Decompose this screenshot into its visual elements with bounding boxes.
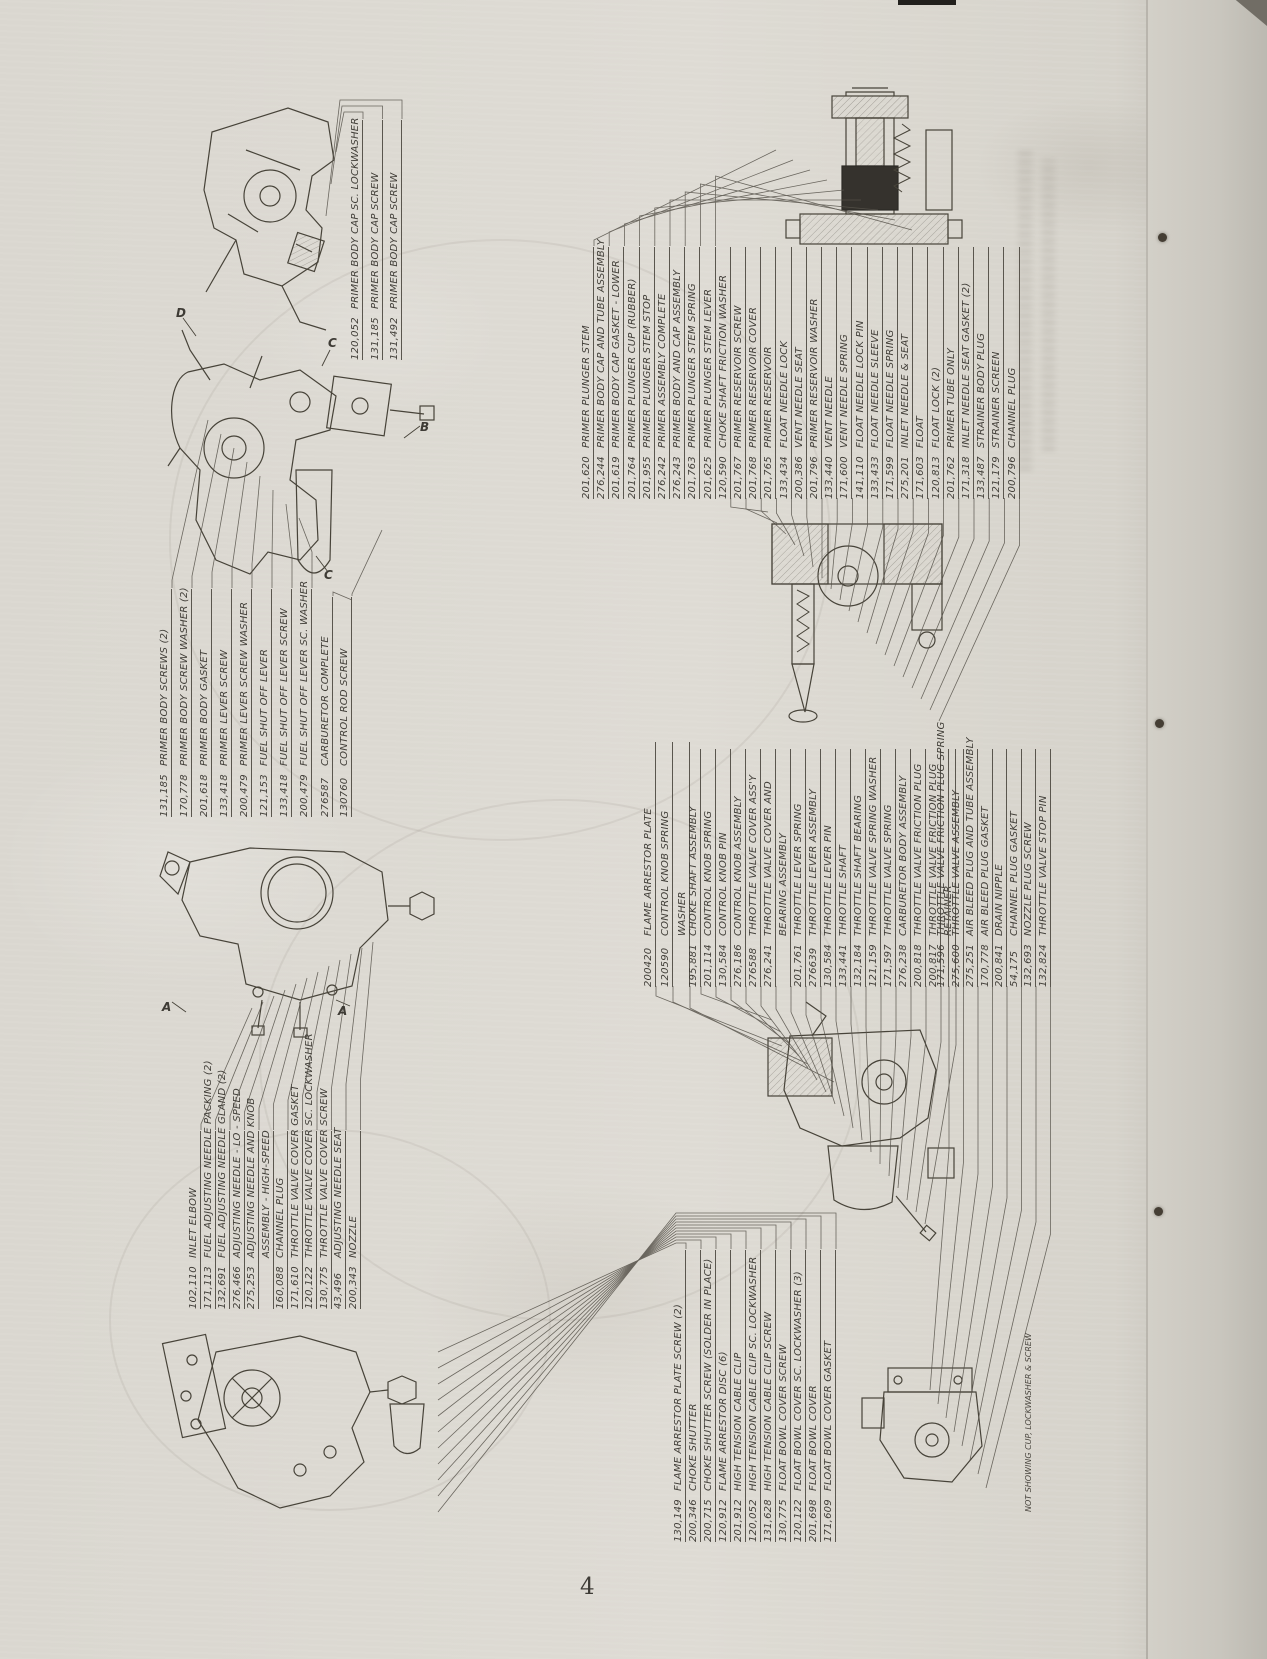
- part-name: FUEL ADJUSTING NEEDLE GLAND (2): [217, 1069, 228, 1258]
- part-label: 275,201INLET NEEDLE & SEAT: [899, 247, 913, 499]
- part-name: PRIMER PLUNGER STEM: [581, 325, 592, 448]
- part-label: 200420FLAME ARRESTOR PLATE: [642, 742, 656, 987]
- part-label: 170,778AIR BLEED PLUG GASKET: [979, 749, 993, 987]
- part-name: CHOKE SHUTTER: [688, 1403, 699, 1491]
- part-label: 200,386VENT NEEDLE SEAT: [793, 247, 807, 499]
- part-number: 200,818: [912, 941, 925, 987]
- part-label: 133,433FLOAT NEEDLE SLEEVE: [869, 247, 883, 499]
- part-name: FLOAT NEEDLE LOCK PIN: [855, 320, 866, 448]
- part-label: 121,179STRAINER SCREEN: [990, 247, 1004, 499]
- part-label: 131,185PRIMER BODY SCREWS (2): [158, 589, 172, 817]
- part-number: 132,693: [1022, 941, 1035, 987]
- part-number: 201,761: [792, 941, 805, 987]
- part-name: FLOAT NEEDLE SPRING: [885, 330, 896, 448]
- part-name: PRIMER BODY GASKET: [199, 650, 210, 766]
- diagram-note: NOT SHOWING CUP, LOCKWASHER & SCREW: [1024, 1333, 1034, 1512]
- part-name: FLOAT NEEDLE LOCK: [779, 341, 790, 448]
- part-label: 130,775FLOAT BOWL COVER SCREW: [777, 1250, 791, 1542]
- part-number: 200,386: [793, 453, 806, 499]
- part-name: THROTTLE SHAFT BEARING: [853, 795, 864, 936]
- part-label: 160,088CHANNEL PLUG: [274, 1131, 288, 1309]
- part-name: FLAME ARRESTOR DISC (6): [718, 1351, 729, 1491]
- part-number: 195,881: [687, 941, 700, 987]
- part-name: CARBURETOR COMPLETE: [320, 636, 331, 766]
- part-name: CHANNEL PLUG: [275, 1178, 286, 1258]
- part-label: 130760CONTROL ROD SCREW: [338, 597, 352, 817]
- part-name: THROTTLE LEVER ASSEMBLY: [808, 789, 819, 936]
- part-name: THROTTLE VALVE COVER GASKET: [290, 1085, 301, 1258]
- leader-line: [938, 986, 964, 1404]
- part-number: 276587: [319, 771, 332, 817]
- part-name: FUEL ADJUSTING NEEDLE PACKING (2): [203, 1060, 214, 1258]
- part-number: 276,244: [595, 453, 608, 499]
- leader-line: [609, 160, 793, 246]
- part-label: 120,590CHOKE SHAFT FRICTION WASHER: [717, 247, 731, 499]
- leader-line: [212, 448, 234, 588]
- part-number: 120,052: [747, 1496, 760, 1542]
- binder-hole: [1158, 233, 1167, 242]
- part-name: VENT NEEDLE SEAT: [794, 347, 805, 448]
- diagram-reservoir-section: [772, 524, 942, 722]
- part-label: 200,818THROTTLE VALVE FRICTION PLUG: [912, 749, 926, 987]
- part-number: 131,628: [762, 1496, 775, 1542]
- part-name: FLOAT LOCK (2): [931, 367, 942, 448]
- part-name: THROTTLE VALVE COVER ASS'Y: [748, 775, 759, 936]
- leader-line: [898, 986, 911, 1188]
- part-number: 201,698: [807, 1496, 820, 1542]
- part-number: 200,715: [702, 1496, 715, 1542]
- part-label: 200,479PRIMER LEVER SCREW WASHER: [238, 589, 252, 817]
- part-label: 54,175CHANNEL PLUG GASKET: [1008, 749, 1022, 987]
- part-name: CONTROL KNOB ASSEMBLY: [733, 796, 744, 936]
- part-label: 171,318INLET NEEDLE SEAT GASKET (2): [960, 247, 974, 499]
- part-label: 130,584CONTROL KNOB PIN: [717, 749, 731, 987]
- part-number: 133,487: [975, 453, 988, 499]
- part-name: PRIMER BODY AND CAP ASSEMBLY: [672, 270, 683, 448]
- part-name: THROTTLE VALVE STOP PIN: [1038, 795, 1049, 936]
- part-number: 200420: [642, 941, 655, 987]
- part-label: 201,698FLOAT BOWL COVER: [807, 1250, 821, 1542]
- part-label: BEARING ASSEMBLY: [777, 749, 791, 987]
- part-label: 275,253ADJUSTING NEEDLE AND KNOB: [245, 1131, 259, 1309]
- part-name: THROTTLE VALVE FRICTION PLUG: [913, 764, 924, 936]
- part-label: 132,691FUEL ADJUSTING NEEDLE GLAND (2): [216, 1131, 230, 1309]
- part-name: PRIMER PLUNGER STEM STOP: [642, 295, 653, 448]
- part-name: ADJUSTING NEEDLE AND KNOB: [246, 1098, 257, 1258]
- diagram-carburetor-front-view: [160, 848, 434, 1037]
- part-name: THROTTLE VALVE ASSEMBLY: [951, 790, 962, 936]
- part-number: 120590: [659, 941, 672, 987]
- part-label: 133,434FLOAT NEEDLE LOCK: [778, 247, 792, 499]
- part-label: 201,955PRIMER PLUNGER STEM STOP: [641, 247, 655, 499]
- part-number: 201,763: [686, 453, 699, 499]
- part-name: AIR BLEED PLUG AND TUBE ASSEMBLY: [965, 737, 976, 936]
- part-name: PRIMER PLUNGER CUP (RUBBER): [627, 278, 638, 448]
- part-number: 171,599: [884, 453, 897, 499]
- leader-line: [716, 986, 781, 1032]
- part-label: 275,600THROTTLE VALVE ASSEMBLY: [950, 749, 964, 987]
- leader-line: [172, 420, 208, 588]
- diagram-float-bowl-rear: [862, 1368, 982, 1482]
- part-name: VENT NEEDLE: [824, 376, 835, 448]
- part-label: 120,052PRIMER BODY CAP SC. LOCKWASHER: [349, 120, 363, 360]
- part-number: 120,813: [930, 453, 943, 499]
- part-name: STRAINER BODY PLUG: [976, 333, 987, 448]
- part-number: 133,441: [837, 941, 850, 987]
- part-name: AIR BLEED PLUG GASKET: [980, 806, 991, 936]
- part-number: 201,762: [945, 453, 958, 499]
- part-name: CHOKE SHAFT FRICTION WASHER: [718, 275, 729, 448]
- leader-line: [946, 986, 978, 1418]
- part-number: 121,159: [867, 941, 880, 987]
- part-label: 200,841DRAIN NIPPLE: [993, 749, 1007, 987]
- part-name: STRAINER SCREEN: [991, 351, 1002, 448]
- part-name: PRIMER BODY CAP AND TUBE ASSEMBLY: [596, 239, 607, 448]
- part-label: 171,599FLOAT NEEDLE SPRING: [884, 247, 898, 499]
- part-label: 201,619PRIMER BODY CAP GASKET - LOWER: [610, 247, 624, 499]
- leader-line: [731, 498, 768, 512]
- leader-line: [731, 986, 790, 1044]
- part-label: 131,185PRIMER BODY CAP SCREW: [369, 120, 383, 360]
- part-name: THROTTLE SHAFT: [838, 845, 849, 936]
- part-number: 121,153: [258, 771, 271, 817]
- part-number: 131,492: [388, 314, 401, 360]
- part-number: 120,052: [349, 314, 362, 360]
- part-label: 130,149FLAME ARRESTOR PLATE SCREW (2): [672, 1250, 686, 1542]
- part-number: 171,596: [935, 941, 948, 987]
- ref-letter-b: B: [420, 420, 429, 434]
- part-label: 133,440VENT NEEDLE: [823, 247, 837, 499]
- part-label: 276,186CONTROL KNOB ASSEMBLY: [732, 749, 746, 987]
- part-number: 130,775: [318, 1263, 331, 1309]
- part-label: 133,418PRIMER LEVER SCREW: [218, 589, 232, 817]
- part-label: 276,242PRIMER ASSEMBLY COMPLETE: [656, 247, 670, 499]
- leader-line: [939, 498, 1020, 721]
- part-number: 170,778: [979, 941, 992, 987]
- part-name: CONTROL KNOB PIN: [718, 832, 729, 936]
- part-label: 171,113FUEL ADJUSTING NEEDLE PACKING (2): [202, 1131, 216, 1309]
- part-name: PRIMER RESERVOIR WASHER: [809, 298, 820, 448]
- part-label: 43,496ADJUSTING NEEDLE SEAT: [332, 1131, 346, 1309]
- part-number: 132,691: [216, 1263, 229, 1309]
- part-name: FLAME ARRESTOR PLATE SCREW (2): [673, 1304, 684, 1491]
- part-name: PRIMER PLUNGER STEM SPRING: [687, 283, 698, 448]
- part-label: 133,418FUEL SHUT OFF LEVER SCREW: [278, 589, 292, 817]
- part-number: 121,179: [990, 453, 1003, 499]
- part-label: 200,346CHOKE SHUTTER: [687, 1250, 701, 1542]
- part-number: 276,241: [762, 941, 775, 987]
- part-number: 171,318: [960, 453, 973, 499]
- part-number: 120,122: [792, 1496, 805, 1542]
- part-number: 132,824: [1037, 941, 1050, 987]
- leader-line: [858, 498, 883, 622]
- part-label: 102,110INLET ELBOW: [187, 1131, 201, 1309]
- part-name: HIGH TENSION CABLE CLIP SCREW: [763, 1312, 774, 1491]
- part-number: 43,496: [332, 1263, 345, 1309]
- part-name: ASSEMBLY - HIGH-SPEED: [261, 1130, 272, 1258]
- part-name: FLOAT BOWL COVER: [808, 1385, 819, 1491]
- part-number: 200,346: [687, 1496, 700, 1542]
- part-name: INLET ELBOW: [188, 1188, 199, 1258]
- part-name: DRAIN NIPPLE: [994, 864, 1005, 936]
- part-number: 133,418: [218, 771, 231, 817]
- part-label: 133,487STRAINER BODY PLUG: [975, 247, 989, 499]
- part-label: 171,603FLOAT: [914, 247, 928, 499]
- part-name: HIGH TENSION CABLE CLIP SC. LOCKWASHER: [748, 1257, 759, 1491]
- part-label: 201,625PRIMER PLUNGER STEM LEVER: [702, 247, 716, 499]
- part-label: 276639THROTTLE LEVER ASSEMBLY: [807, 749, 821, 987]
- part-name: CHANNEL PLUG: [1007, 368, 1018, 448]
- part-number: 201,619: [610, 453, 623, 499]
- part-label: 276,241THROTTLE VALVE COVER AND: [762, 749, 776, 987]
- scan-artifact-bar: [898, 0, 956, 5]
- part-name: THROTTLE VALVE SPRING WASHER: [868, 756, 879, 936]
- page-number: 4: [580, 1574, 595, 1600]
- part-label: 275,251AIR BLEED PLUG AND TUBE ASSEMBLY: [964, 749, 978, 987]
- part-number: 201,620: [580, 453, 593, 499]
- part-name: VENT NEEDLE SPRING: [839, 334, 850, 448]
- part-number: 275,201: [899, 453, 912, 499]
- part-number: 201,912: [732, 1496, 745, 1542]
- part-name: INLET NEEDLE & SEAT: [900, 334, 911, 448]
- part-number: 170,778: [178, 771, 191, 817]
- part-name: CONTROL KNOB SPRING: [660, 811, 671, 936]
- part-number: 276,242: [656, 453, 669, 499]
- part-number: 275,600: [950, 941, 963, 987]
- part-label: 276,243PRIMER BODY AND CAP ASSEMBLY: [671, 247, 685, 499]
- part-label: 195,881CHOKE SHAFT ASSEMBLY: [687, 749, 701, 987]
- part-name: FLOAT BOWL COVER SCREW: [778, 1344, 789, 1491]
- part-number: 200,841: [993, 941, 1006, 987]
- ref-letter-c-upper: C: [328, 336, 337, 350]
- part-number: 120,590: [717, 453, 730, 499]
- part-number: 276588: [747, 941, 760, 987]
- part-label: 120,122THROTTLE VALVE COVER SC. LOCKWASH…: [303, 1131, 317, 1309]
- part-label: ASSEMBLY - HIGH-SPEED: [260, 1131, 274, 1309]
- part-name: FLOAT BOWL COVER SC. LOCKWASHER (3): [793, 1271, 804, 1491]
- part-name: PRIMER BODY CAP GASKET - LOWER: [611, 260, 622, 448]
- part-number: 130760: [338, 771, 351, 817]
- part-name: PRIMER RESERVOIR: [763, 346, 774, 448]
- part-name: FLOAT: [915, 416, 926, 448]
- part-number: 120,912: [717, 1496, 730, 1542]
- part-name: CONTROL ROD SCREW: [339, 648, 350, 766]
- part-number: 133,440: [823, 453, 836, 499]
- part-name: BEARING ASSEMBLY: [778, 833, 789, 936]
- binder-hole: [1155, 719, 1164, 728]
- bleed-smudge: [1018, 150, 1032, 470]
- part-number: 130,584: [822, 941, 835, 987]
- part-number: 276,186: [732, 941, 745, 987]
- leader-line: [831, 498, 837, 589]
- part-label: 201,618PRIMER BODY GASKET: [198, 589, 212, 817]
- part-label: 201,796PRIMER RESERVOIR WASHER: [808, 247, 822, 499]
- part-name: CHOKE SHAFT ASSEMBLY: [688, 806, 699, 936]
- part-name: PRIMER BODY CAP SCREW: [370, 173, 381, 309]
- part-number: 275,253: [245, 1263, 258, 1309]
- part-label: 120,813FLOAT LOCK (2): [930, 247, 944, 499]
- leader-line: [332, 954, 352, 1130]
- part-number: 141,110: [854, 453, 867, 499]
- part-name: CHANNEL PLUG GASKET: [1009, 811, 1020, 936]
- part-name: ADJUSTING NEEDLE SEAT: [333, 1127, 344, 1258]
- part-number: 130,584: [717, 941, 730, 987]
- part-number: 201,768: [747, 453, 760, 499]
- part-label: 130,584THROTTLE LEVER PIN: [822, 749, 836, 987]
- part-label: 276588THROTTLE VALVE COVER ASS'Y: [747, 749, 761, 987]
- part-name: ADJUSTING NEEDLE - LO - SPEED: [232, 1088, 243, 1258]
- leader-line: [286, 504, 292, 588]
- part-number: 171,600: [838, 453, 851, 499]
- part-label: 171,600VENT NEEDLE SPRING: [838, 247, 852, 499]
- part-name: FUEL SHUT OFF LEVER: [259, 649, 270, 766]
- part-label: 201,912HIGH TENSION CABLE CLIP: [732, 1250, 746, 1542]
- part-label: 200,343NOZZLE: [347, 1131, 361, 1309]
- part-label: 171,596THROTTLE VALVE FRICTION PLUG SPRI…: [935, 749, 949, 987]
- part-number: 201,767: [732, 453, 745, 499]
- part-name: PRIMER BODY CAP SCREW: [389, 173, 400, 309]
- part-label: 120590CONTROL KNOB SPRING: [659, 742, 673, 987]
- part-label: 133,441THROTTLE SHAFT: [837, 749, 851, 987]
- part-number: 201,114: [702, 941, 715, 987]
- part-name: PRIMER RESERVOIR COVER: [748, 307, 759, 448]
- part-label: 132,824THROTTLE VALVE STOP PIN: [1037, 749, 1051, 987]
- part-name: THROTTLE VALVE FRICTION PLUG SPRING: [936, 722, 947, 937]
- part-name: FUEL SHUT OFF LEVER SC. WASHER: [299, 581, 310, 766]
- part-name: THROTTLE VALVE COVER SCREW: [319, 1088, 330, 1258]
- ref-letter-d: D: [176, 306, 186, 320]
- part-number: 171,610: [289, 1263, 302, 1309]
- part-label: 121,159THROTTLE VALVE SPRING WASHER: [867, 749, 881, 987]
- part-number: 171,609: [822, 1496, 835, 1542]
- binder-hole: [1154, 1207, 1163, 1216]
- part-label: 276,466ADJUSTING NEEDLE - LO - SPEED: [231, 1131, 245, 1309]
- leader-line: [656, 986, 782, 1046]
- part-name: THROTTLE LEVER SPRING: [793, 803, 804, 936]
- part-name: HIGH TENSION CABLE CLIP: [733, 1352, 744, 1491]
- part-label: 131,492PRIMER BODY CAP SCREW: [388, 120, 402, 360]
- ref-letter-a-right: A: [338, 1004, 347, 1018]
- part-label: 201,764PRIMER PLUNGER CUP (RUBBER): [626, 247, 640, 499]
- part-name: PRIMER LEVER SCREW: [219, 650, 230, 766]
- part-label: 201,620PRIMER PLUNGER STEM: [580, 247, 594, 499]
- part-name: FUEL SHUT OFF LEVER SCREW: [279, 608, 290, 766]
- part-label: 171,597THROTTLE VALVE SPRING: [882, 749, 896, 987]
- part-name: PRIMER BODY SCREWS (2): [159, 629, 170, 766]
- leader-line: [849, 498, 868, 611]
- part-label: 171,610THROTTLE VALVE COVER GASKET: [289, 1131, 303, 1309]
- part-name: THROTTLE LEVER PIN: [823, 825, 834, 936]
- part-label: 141,110FLOAT NEEDLE LOCK PIN: [854, 247, 868, 499]
- part-label: 200,715CHOKE SHUTTER SCREW (SOLDER IN PL…: [702, 1250, 716, 1542]
- part-label: 200,479FUEL SHUT OFF LEVER SC. WASHER: [298, 589, 312, 817]
- leader-line: [907, 986, 926, 1200]
- part-name: PRIMER RESERVOIR SCREW: [733, 305, 744, 448]
- diagram-primer-section: [786, 88, 962, 244]
- part-label: 171,609FLOAT BOWL COVER GASKET: [822, 1250, 836, 1542]
- part-number: 276639: [807, 941, 820, 987]
- leader-line: [986, 986, 1051, 1488]
- page-edge: [1148, 0, 1267, 1659]
- part-name: NOZZLE PLUG SCREW: [1023, 822, 1034, 936]
- part-number: 130,149: [672, 1496, 685, 1542]
- leader-line: [624, 170, 810, 246]
- part-label: 201,761THROTTLE LEVER SPRING: [792, 749, 806, 987]
- part-number: 130,775: [777, 1496, 790, 1542]
- part-number: 133,434: [778, 453, 791, 499]
- part-label: 170,778PRIMER BODY SCREW WASHER (2): [178, 589, 192, 817]
- part-number: 120,122: [303, 1263, 316, 1309]
- part-label: 131,628HIGH TENSION CABLE CLIP SCREW: [762, 1250, 776, 1542]
- part-number: 54,175: [1008, 941, 1021, 987]
- leader-line: [840, 498, 852, 600]
- part-number: 200,479: [298, 771, 311, 817]
- part-label: 276,244PRIMER BODY CAP AND TUBE ASSEMBLY: [595, 247, 609, 499]
- part-name: FLOAT NEEDLE SLEEVE: [870, 329, 881, 448]
- part-number: 171,603: [914, 453, 927, 499]
- part-name: PRIMER PLUNGER STEM LEVER: [703, 289, 714, 448]
- part-label: 201,767PRIMER RESERVOIR SCREW: [732, 247, 746, 499]
- part-number: 171,113: [202, 1263, 215, 1309]
- part-name: NOZZLE: [348, 1216, 359, 1258]
- part-label: 201,762PRIMER TUBE ONLY: [945, 247, 959, 499]
- part-label: 201,768PRIMER RESERVOIR COVER: [747, 247, 761, 499]
- part-number: 201,618: [198, 771, 211, 817]
- bleed-smudge: [1042, 160, 1055, 450]
- part-number: 160,088: [274, 1263, 287, 1309]
- part-name: FLAME ARRESTOR PLATE: [643, 808, 654, 936]
- part-name: THROTTLE VALVE SPRING: [883, 804, 894, 936]
- part-number: 275,251: [964, 941, 977, 987]
- part-number: 201,765: [762, 453, 775, 499]
- part-number: 276,238: [897, 941, 910, 987]
- part-number: 201,764: [626, 453, 639, 499]
- part-label: 201,765PRIMER RESERVOIR: [762, 247, 776, 499]
- part-number: 276,243: [671, 453, 684, 499]
- part-number: 102,110: [187, 1263, 200, 1309]
- diagram-primer-pump-side: [204, 108, 334, 330]
- part-name: PRIMER TUBE ONLY: [946, 348, 957, 448]
- part-label: 201,763PRIMER PLUNGER STEM SPRING: [686, 247, 700, 499]
- part-number: 132,184: [852, 941, 865, 987]
- part-label: 276,238CARBURETOR BODY ASSEMBLY: [897, 749, 911, 987]
- part-number: 276,466: [231, 1263, 244, 1309]
- part-name: PRIMER LEVER SCREW WASHER: [239, 602, 250, 766]
- part-name: THROTTLE VALVE COVER SC. LOCKWASHER: [304, 1033, 315, 1258]
- leader-line: [361, 942, 374, 1130]
- part-label: 120,122FLOAT BOWL COVER SC. LOCKWASHER (…: [792, 1250, 806, 1542]
- part-number: 201,625: [702, 453, 715, 499]
- part-label: 201,114CONTROL KNOB SPRING: [702, 749, 716, 987]
- part-name: CONTROL KNOB SPRING: [703, 811, 714, 936]
- part-number: 200,479: [238, 771, 251, 817]
- part-number: 131,185: [369, 314, 382, 360]
- diagram-carburetor-bottom-view: [163, 1334, 424, 1508]
- part-name: PRIMER BODY CAP SC. LOCKWASHER: [350, 118, 361, 309]
- part-number: 201,955: [641, 453, 654, 499]
- part-name: INLET NEEDLE SEAT GASKET (2): [961, 283, 972, 448]
- leader-line: [272, 490, 273, 588]
- scanned-page: 120,052PRIMER BODY CAP SC. LOCKWASHER131…: [0, 0, 1267, 1659]
- leader-line: [836, 986, 853, 1128]
- leader-line: [438, 1243, 686, 1352]
- part-number: 171,597: [882, 941, 895, 987]
- part-number: 133,433: [869, 453, 882, 499]
- part-number: 200,796: [1006, 453, 1019, 499]
- ref-letter-c-lower: C: [324, 568, 333, 582]
- part-name: FLOAT BOWL COVER GASKET: [823, 1341, 834, 1491]
- part-label: 120,912FLAME ARRESTOR DISC (6): [717, 1250, 731, 1542]
